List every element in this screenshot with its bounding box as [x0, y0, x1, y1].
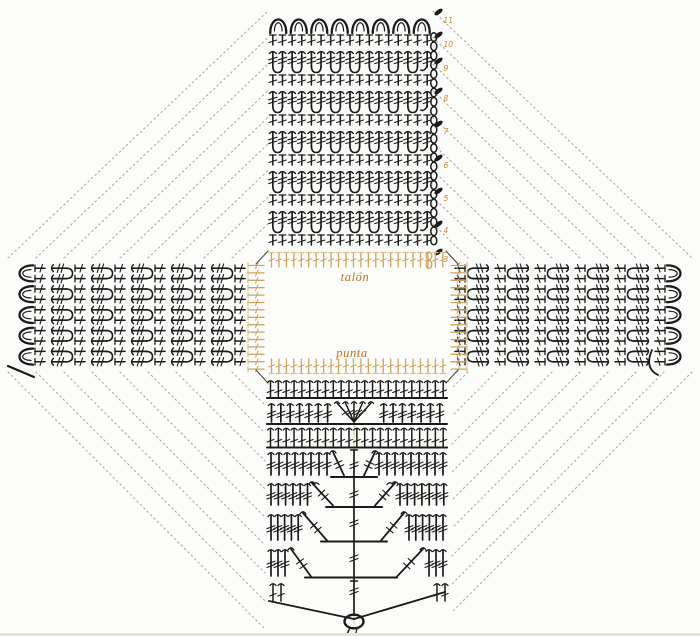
- toe-label: punta: [335, 346, 367, 360]
- row-number: 5: [444, 194, 449, 203]
- left-arm-chart: [20, 264, 246, 366]
- scallop-arc: [667, 307, 681, 323]
- scallop-inner-arc: [377, 23, 385, 31]
- base-hook: [421, 106, 428, 111]
- pair-base-curve: [331, 66, 341, 73]
- pair-base-curve: [588, 289, 595, 299]
- pair-base-curve: [369, 66, 379, 73]
- join-line: [148, 372, 265, 489]
- pair-base-curve: [389, 66, 399, 73]
- pair-base-curve: [468, 351, 475, 361]
- decrease-stitch: [397, 549, 423, 577]
- pair-base-curve: [273, 66, 283, 73]
- decrease-stitch: [312, 483, 333, 506]
- pair-base-curve: [292, 146, 302, 153]
- pair-base-curve: [369, 106, 379, 113]
- pair-base-curve: [106, 351, 113, 361]
- scallop-arc: [20, 286, 34, 302]
- stitch-marker: [433, 186, 443, 195]
- pair-base-curve: [369, 146, 379, 153]
- corner-join-line: [446, 370, 458, 383]
- join-line: [433, 117, 580, 258]
- chain-loop: [431, 134, 437, 143]
- chain-loop: [431, 70, 437, 79]
- pair-base-curve: [389, 146, 399, 153]
- row-number: 9: [444, 64, 449, 73]
- join-line: [452, 372, 580, 500]
- top-arm-chart: [269, 20, 432, 246]
- pair-base-curve: [408, 146, 418, 153]
- corner-join-line: [256, 370, 268, 383]
- scallop-inner-arc: [23, 332, 31, 340]
- chain-loop: [431, 236, 437, 245]
- chain-loop: [431, 171, 437, 180]
- pair-base-curve: [186, 268, 193, 278]
- pair-base-curve: [331, 186, 341, 193]
- pair-base-curve: [588, 310, 595, 320]
- yarn-tails: [0, 350, 700, 636]
- scallop-arc: [667, 265, 681, 281]
- pair-base-curve: [331, 106, 341, 113]
- pair-base-curve: [66, 268, 73, 278]
- pair-base-curve: [146, 268, 153, 278]
- pair-base-curve: [508, 351, 515, 361]
- foundation-line: [269, 601, 354, 619]
- chain-loop: [431, 199, 437, 208]
- scallop-arc: [20, 349, 34, 365]
- pair-base-curve: [146, 331, 153, 341]
- scallop-inner-arc: [23, 270, 31, 278]
- pair-base-curve: [350, 146, 360, 153]
- scallop-arc: [311, 20, 327, 34]
- scallop-inner-arc: [274, 23, 282, 31]
- join-line: [92, 91, 268, 258]
- row-number: 8: [444, 94, 449, 103]
- join-line: [120, 372, 265, 517]
- pair-base-curve: [186, 310, 193, 320]
- join-line: [8, 372, 265, 629]
- pair-base-curve: [408, 106, 418, 113]
- pair-base-curve: [350, 226, 360, 233]
- join-line: [452, 372, 552, 472]
- join-line: [204, 197, 268, 258]
- join-line: [452, 372, 664, 584]
- pair-base-curve: [186, 351, 193, 361]
- chain-loop: [431, 162, 437, 171]
- join-line: [232, 372, 265, 405]
- tan-chain-loop: [426, 252, 432, 260]
- scallop-arc: [373, 20, 389, 34]
- pair-base-curve: [369, 186, 379, 193]
- pair-base-curve: [226, 351, 233, 361]
- pair-base-curve: [66, 351, 73, 361]
- scallop-inner-arc: [669, 270, 677, 278]
- pair-base-curve: [468, 289, 475, 299]
- dc-tick: [300, 564, 307, 569]
- chain-loop: [431, 227, 437, 236]
- pair-base-curve: [226, 268, 233, 278]
- pair-base-curve: [508, 331, 515, 341]
- scallop-arc: [20, 265, 34, 281]
- stitch-marker: [433, 30, 443, 39]
- join-line: [433, 171, 524, 258]
- pair-base-curve: [311, 146, 321, 153]
- pair-base-curve: [292, 226, 302, 233]
- pair-base-curve: [66, 331, 73, 341]
- scallop-inner-arc: [669, 311, 677, 319]
- scallop-inner-arc: [356, 23, 364, 31]
- pair-base-curve: [548, 351, 555, 361]
- chain-loop: [431, 181, 437, 190]
- pair-base-curve: [548, 289, 555, 299]
- pair-base-curve: [273, 146, 283, 153]
- corner-join-line: [256, 251, 268, 264]
- pair-base-curve: [226, 289, 233, 299]
- pair-base-curve: [311, 106, 321, 113]
- join-line: [452, 372, 608, 528]
- pair-base-curve: [311, 186, 321, 193]
- center-square: talón punta: [248, 251, 467, 383]
- join-line: [433, 64, 636, 258]
- pair-base-curve: [588, 351, 595, 361]
- decrease-stitch: [303, 513, 327, 541]
- row-numbers: 11109876543: [444, 16, 454, 264]
- pair-base-curve: [350, 186, 360, 193]
- pair-base-curve: [186, 331, 193, 341]
- stitch-marker: [433, 7, 443, 16]
- pair-base-curve: [588, 331, 595, 341]
- foundation-line: [354, 592, 445, 619]
- join-line: [64, 64, 268, 258]
- pair-base-curve: [273, 226, 283, 233]
- base-hook: [421, 226, 428, 231]
- join-line: [8, 11, 268, 258]
- join-line: [176, 171, 268, 258]
- join-line: [176, 372, 265, 461]
- base-hook: [421, 186, 428, 191]
- pair-base-curve: [408, 186, 418, 193]
- row-number: 11: [444, 16, 454, 25]
- heel-label: talón: [341, 270, 370, 284]
- scallop-arc: [667, 286, 681, 302]
- pair-base-curve: [311, 226, 321, 233]
- pair-base-curve: [106, 268, 113, 278]
- pair-base-curve: [468, 331, 475, 341]
- pair-base-curve: [273, 186, 283, 193]
- stitch-markers: [433, 7, 443, 256]
- join-line: [433, 38, 664, 258]
- pair-base-curve: [331, 146, 341, 153]
- scallop-arc: [393, 20, 409, 34]
- scallop-inner-arc: [669, 290, 677, 298]
- pair-base-curve: [389, 186, 399, 193]
- scallop-inner-arc: [397, 23, 405, 31]
- decrease-stitch: [375, 483, 395, 506]
- pair-base-curve: [408, 226, 418, 233]
- pair-base-curve: [350, 66, 360, 73]
- join-line: [452, 372, 496, 416]
- scallop-arc: [20, 328, 34, 344]
- join-line: [120, 117, 268, 258]
- bottom-arm-chart: [267, 381, 448, 634]
- pair-base-curve: [292, 186, 302, 193]
- join-line: [452, 372, 524, 444]
- pair-base-curve: [106, 289, 113, 299]
- chain-loop: [431, 97, 437, 106]
- scallop-inner-arc: [23, 290, 31, 298]
- pair-base-curve: [628, 351, 635, 361]
- chain-loop: [431, 42, 437, 51]
- dc-tick: [297, 559, 304, 564]
- tan-chain-loop: [426, 261, 432, 269]
- join-line: [36, 372, 265, 601]
- pair-base-curve: [628, 289, 635, 299]
- pair-base-curve: [468, 310, 475, 320]
- join-line: [433, 91, 608, 258]
- pair-base-curve: [146, 289, 153, 299]
- pair-base-curve: [508, 310, 515, 320]
- join-line: [204, 372, 265, 433]
- pair-base-curve: [273, 106, 283, 113]
- scallop-inner-arc: [669, 332, 677, 340]
- pair-base-curve: [508, 289, 515, 299]
- join-line: [452, 372, 636, 556]
- scallop-inner-arc: [418, 23, 426, 31]
- pair-base-curve: [146, 351, 153, 361]
- pair-base-curve: [628, 268, 635, 278]
- scallop-arc: [352, 20, 368, 34]
- scallop-inner-arc: [23, 353, 31, 361]
- decrease-stitch: [381, 513, 404, 541]
- join-line: [232, 224, 268, 258]
- pair-base-curve: [548, 331, 555, 341]
- row-number: 10: [444, 40, 454, 49]
- scallop-arc: [332, 20, 348, 34]
- pair-base-curve: [66, 289, 73, 299]
- scallop-arc: [667, 328, 681, 344]
- pair-base-curve: [628, 310, 635, 320]
- scallop-inner-arc: [295, 23, 303, 31]
- row-number: 6: [444, 161, 449, 170]
- pair-base-curve: [146, 310, 153, 320]
- pair-base-curve: [350, 106, 360, 113]
- scallop-arc: [270, 20, 286, 34]
- page-root: 11109876543 talón punta: [0, 0, 700, 636]
- pair-base-curve: [66, 310, 73, 320]
- pair-base-curve: [226, 310, 233, 320]
- pair-base-curve: [508, 268, 515, 278]
- pair-base-curve: [186, 289, 193, 299]
- scallop-arc: [414, 20, 430, 34]
- scallop-inner-arc: [669, 353, 677, 361]
- pair-base-curve: [226, 331, 233, 341]
- base-hook: [421, 146, 428, 151]
- ring-tick: [348, 628, 351, 633]
- crochet-chart: 11109876543 talón punta: [0, 0, 700, 636]
- pair-base-curve: [389, 106, 399, 113]
- chain-loop: [431, 208, 437, 217]
- join-line: [36, 38, 268, 258]
- base-hook: [421, 66, 428, 71]
- pair-base-curve: [292, 66, 302, 73]
- right-arm-chart: [455, 264, 681, 366]
- pair-base-curve: [311, 66, 321, 73]
- scallop-arc: [20, 307, 34, 323]
- pair-base-curve: [369, 226, 379, 233]
- pair-base-curve: [331, 226, 341, 233]
- join-line: [92, 372, 265, 545]
- pair-base-curve: [389, 226, 399, 233]
- pair-base-curve: [408, 66, 418, 73]
- chain-loop: [431, 107, 437, 116]
- chain-loop: [431, 116, 437, 125]
- scallop-inner-arc: [315, 23, 323, 31]
- row-number: 7: [444, 127, 449, 136]
- pair-base-curve: [628, 331, 635, 341]
- join-line: [433, 11, 692, 258]
- scallop-arc: [667, 349, 681, 365]
- scallop-inner-arc: [336, 23, 344, 31]
- scallop-inner-arc: [23, 311, 31, 319]
- chain-loop: [431, 51, 437, 60]
- pair-base-curve: [106, 310, 113, 320]
- pair-base-curve: [588, 268, 595, 278]
- pair-base-curve: [548, 268, 555, 278]
- chain-loop: [431, 79, 437, 88]
- join-line: [433, 197, 496, 258]
- pair-base-curve: [292, 106, 302, 113]
- row-number: 4: [444, 226, 449, 235]
- scallop-arc: [291, 20, 307, 34]
- pair-base-curve: [468, 268, 475, 278]
- pair-base-curve: [106, 331, 113, 341]
- pair-base-curve: [548, 310, 555, 320]
- decrease-stitch: [291, 549, 311, 577]
